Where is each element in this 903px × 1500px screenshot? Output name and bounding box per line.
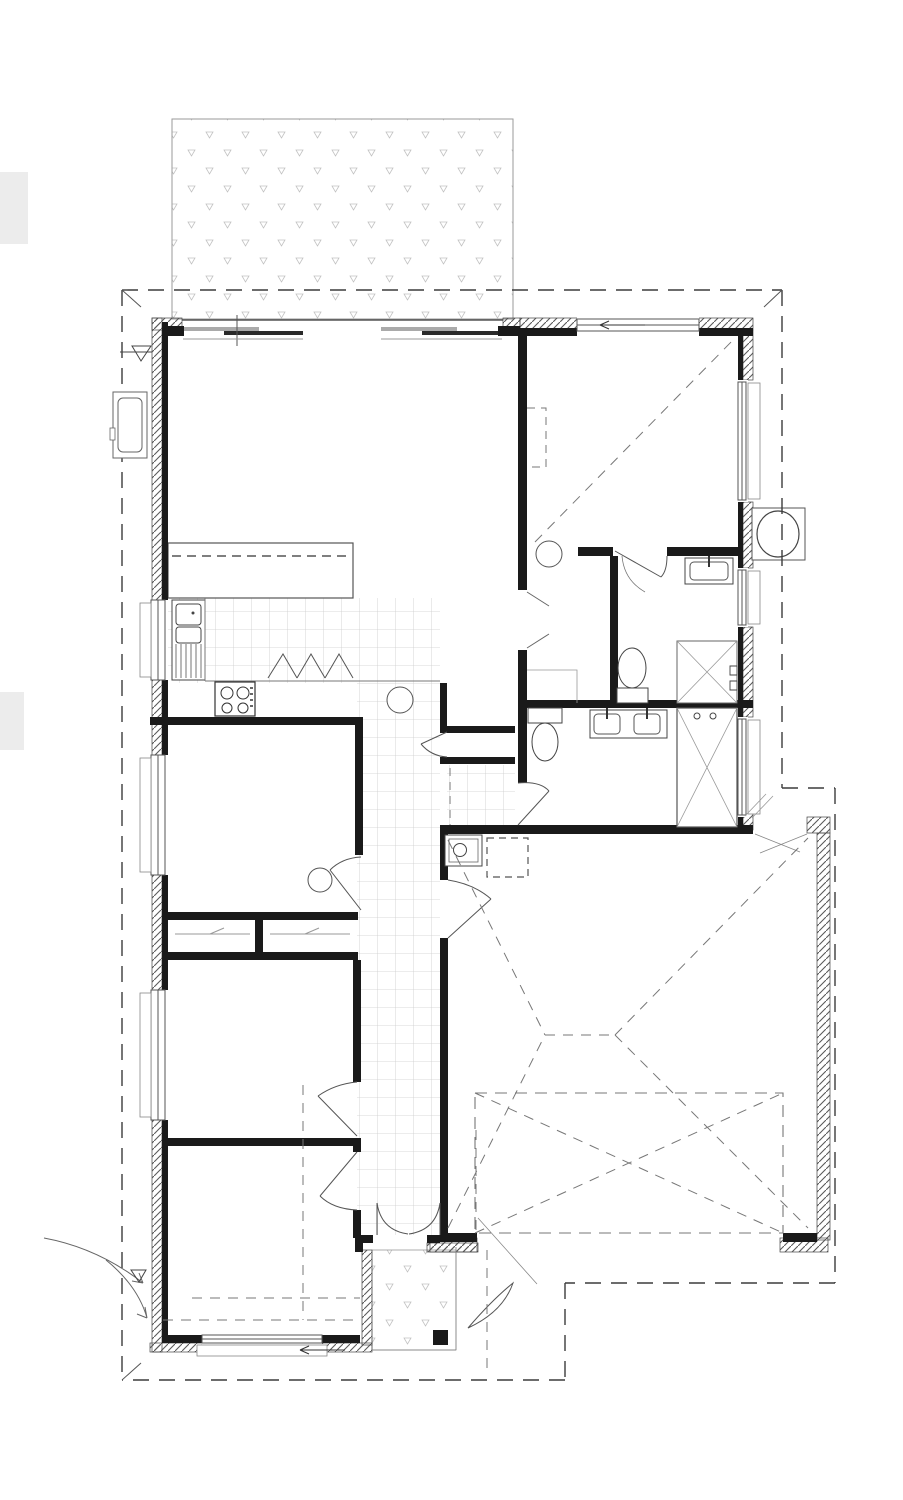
kitchen-floor-tiles — [168, 598, 440, 683]
door-garage-internal — [448, 880, 491, 938]
hip-dash-garage-1 — [448, 840, 545, 1035]
niche-dashed-bed1 — [527, 408, 546, 467]
leader-arrow-2 — [106, 1260, 147, 1318]
wall-bed1-top-1 — [520, 328, 577, 336]
door-bed1-wc — [615, 551, 667, 577]
ceiling-fixture-bed1 — [536, 541, 562, 567]
window-bed2-sill — [140, 758, 151, 872]
wall-garage-south-a — [440, 1233, 477, 1242]
wall-corner-tl — [162, 326, 184, 336]
wall-bed4-south-b — [322, 1335, 360, 1343]
porch-post — [433, 1330, 448, 1345]
wall-living-bed1-a — [518, 336, 527, 590]
door-bed2 — [330, 857, 361, 910]
wall-porch-west — [355, 1238, 363, 1252]
garage-ne-corner-hatch — [807, 817, 830, 833]
window-bed1-east-sill — [748, 383, 760, 499]
hip-dash-bed1 — [535, 338, 735, 542]
wall-bed4-south-a — [163, 1335, 202, 1343]
floor-plan-svg — [0, 0, 903, 1500]
wall-linen-south — [440, 757, 515, 764]
ceiling-fixture-bed2 — [308, 868, 332, 892]
garage-right-wall-hatch — [817, 833, 830, 1240]
wall-right-2 — [738, 502, 743, 568]
sliding-panel-2a — [381, 327, 457, 331]
bath-toilet-pan — [532, 723, 558, 761]
appliance-space-dashed — [487, 838, 528, 877]
window-ensuite-sill — [748, 571, 760, 624]
wall-corner-tr-living — [498, 326, 520, 336]
floor-plan — [0, 0, 903, 1500]
roofline-tick-tl — [122, 290, 141, 307]
hall-edge-lines — [527, 670, 577, 703]
sliding-panel-1a — [183, 327, 259, 331]
ext-wall-right-hatch-1 — [743, 330, 753, 380]
wall-living-bed1-b — [518, 650, 527, 783]
door-bed4 — [320, 1152, 357, 1210]
scan-smudge-1 — [0, 172, 28, 244]
hip-dash-garage-2 — [448, 1035, 545, 1228]
laundry-tub — [445, 835, 482, 866]
wall-bed4-north — [163, 1138, 360, 1146]
leader-arrow-1 — [44, 1238, 143, 1283]
entry-pier-hatch — [427, 1243, 478, 1252]
wall-bed4-east-b — [353, 1210, 361, 1238]
kitchen-island-bench — [168, 543, 353, 598]
bath-toilet-cistern — [528, 708, 562, 723]
hall-floor-tiles — [357, 683, 440, 1235]
wall-bed1-bottom-2 — [667, 547, 738, 556]
meter-box-tab — [110, 428, 115, 440]
wall-entry-south-b — [427, 1235, 440, 1243]
sliding-panel-1b — [224, 331, 303, 335]
wall-bed3-east — [353, 960, 361, 1082]
wall-bed1-bottom-1 — [578, 547, 613, 556]
wall-bed1-top-2 — [699, 328, 753, 336]
hip-dash-garage-4 — [615, 1035, 808, 1228]
cooktop — [215, 682, 255, 716]
window-bath-sill — [748, 720, 760, 814]
wc-toilet-pan — [618, 648, 646, 688]
survey-triangle-marker — [120, 346, 152, 361]
sliding-panel-2b — [422, 331, 502, 335]
wall-right-1 — [738, 330, 743, 380]
wall-robe-divider — [255, 916, 263, 956]
wall-kitchen-south — [150, 717, 363, 725]
wall-bed4-east-a — [353, 1138, 361, 1152]
wall-linen-west — [440, 683, 447, 732]
wall-linen-north — [440, 726, 515, 733]
hip-dash-garage-3 — [615, 838, 808, 1035]
opening-living-hall-splay — [527, 592, 549, 648]
door-front-external-leaf — [468, 1283, 513, 1328]
garage-slab-dashed-x — [475, 1093, 783, 1233]
door-bed3 — [318, 1082, 357, 1136]
door-garage-side-swing — [755, 834, 807, 853]
window-kitchen-sill — [140, 603, 151, 677]
water-heater-circle — [757, 511, 799, 557]
kitchen-sink-unit — [172, 600, 205, 680]
porch-west-wall-hatch — [362, 1250, 372, 1345]
ceiling-fixture-hall — [387, 687, 413, 713]
patio-paving — [172, 119, 513, 319]
door-bathroom — [518, 783, 549, 825]
wall-ensuite-west — [610, 556, 618, 703]
scan-smudge-2 — [0, 692, 24, 750]
wc-toilet-cistern — [617, 688, 648, 703]
roofline-tick-bl — [122, 1363, 141, 1380]
lobby-floor-tiles — [447, 765, 515, 825]
wall-robe-south — [163, 952, 358, 960]
window-bed3-sill — [140, 993, 151, 1117]
roofline-tick-tr — [764, 290, 782, 307]
wall-bed2-east — [355, 725, 363, 855]
wall-garage-west-b — [440, 938, 448, 1233]
sink-plug-dot — [192, 612, 195, 615]
wall-garage-south-b — [783, 1233, 817, 1242]
